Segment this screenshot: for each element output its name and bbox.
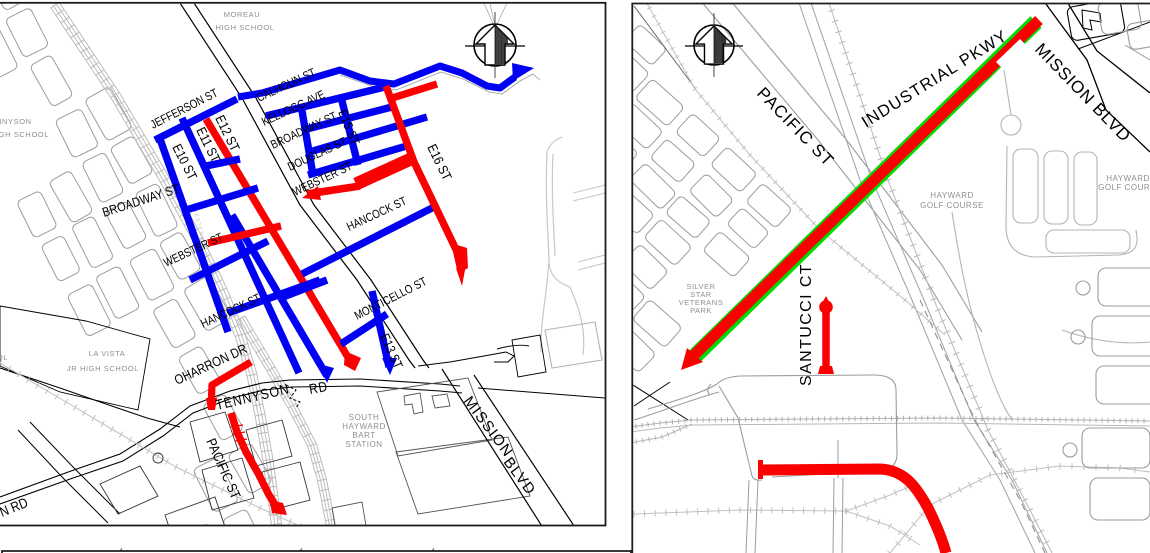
svg-text:SOUTH: SOUTH xyxy=(349,413,380,422)
svg-text:MOREAU: MOREAU xyxy=(224,10,261,19)
svg-text:GOLF COURSE: GOLF COURSE xyxy=(920,201,984,210)
svg-text:LA VISTA: LA VISTA xyxy=(89,349,126,358)
svg-text:HAYWARD: HAYWARD xyxy=(1106,174,1150,183)
svg-text:HAYWARD: HAYWARD xyxy=(342,422,386,431)
svg-text:SANTUCCI CT: SANTUCCI CT xyxy=(798,263,815,386)
svg-text:MISSION BLVD: MISSION BLVD xyxy=(1031,40,1134,146)
svg-text:PARK: PARK xyxy=(690,306,712,315)
svg-text:MONTICELLO ST: MONTICELLO ST xyxy=(353,275,430,323)
svg-text:OL: OL xyxy=(0,353,8,362)
svg-text:BART: BART xyxy=(352,431,375,440)
svg-text:OHARRON DR: OHARRON DR xyxy=(172,341,249,388)
svg-text:BROADWAY ST: BROADWAY ST xyxy=(100,181,181,220)
svg-text:PACIFIC ST: PACIFIC ST xyxy=(753,84,838,171)
svg-text:E13 ST: E13 ST xyxy=(377,331,406,371)
svg-text:JR HIGH SCHOOL: JR HIGH SCHOOL xyxy=(67,364,139,373)
svg-text:HAYWARD: HAYWARD xyxy=(930,191,974,200)
svg-text:N RD: N RD xyxy=(0,494,30,520)
svg-text:RD: RD xyxy=(308,378,329,397)
svg-text:HIGH SCHOOL: HIGH SCHOOL xyxy=(215,23,274,32)
svg-text:PACIFIC ST: PACIFIC ST xyxy=(203,436,244,502)
svg-text:STATION: STATION xyxy=(346,440,383,449)
svg-text:IGH SCHOOL: IGH SCHOOL xyxy=(0,130,49,139)
svg-text:GOLF COURSE: GOLF COURSE xyxy=(1098,183,1150,192)
svg-text:E16 ST: E16 ST xyxy=(424,142,454,183)
svg-text:NNYSON: NNYSON xyxy=(0,117,32,126)
